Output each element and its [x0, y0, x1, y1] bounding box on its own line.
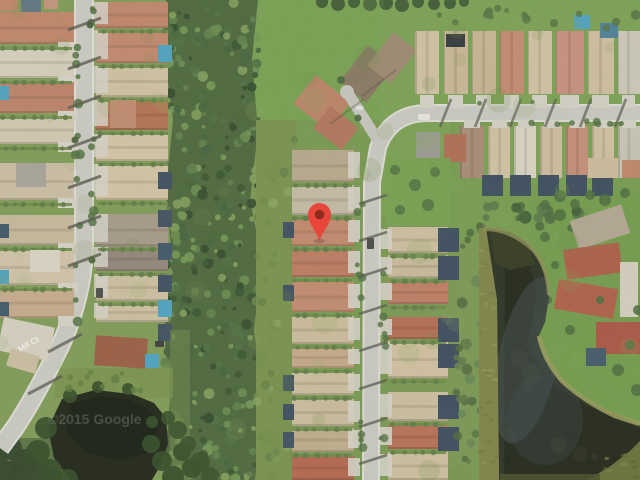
- svg-text:©2015 Google: ©2015 Google: [48, 411, 142, 427]
